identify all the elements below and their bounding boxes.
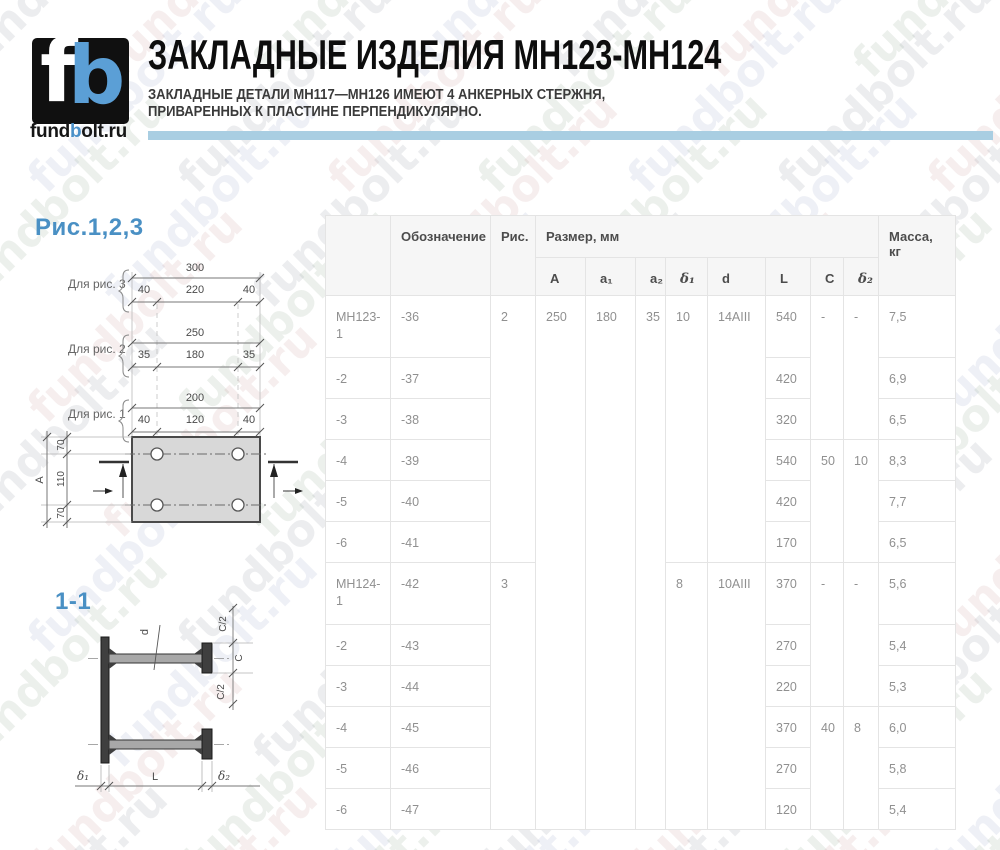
- cell-name: -2: [326, 625, 391, 666]
- delta2-label: δ₂: [218, 769, 230, 783]
- cell-mass: 5,3: [879, 666, 956, 707]
- cell-a1: 180: [586, 296, 636, 830]
- cell-L: 370: [766, 707, 811, 748]
- cell-C: 40: [811, 707, 844, 830]
- table-row: МН123-1 -36 2 250 180 35 10 14AIII 540 -…: [326, 296, 956, 358]
- cell-mass: 7,7: [879, 481, 956, 522]
- fundbolt-logo: f b: [32, 38, 129, 124]
- corner-cell: [326, 216, 391, 296]
- cell-delta2: 8: [844, 707, 879, 830]
- cell-name: МН123-1: [326, 296, 391, 358]
- cell-L: 270: [766, 625, 811, 666]
- c-half-top-label: C/2: [218, 616, 229, 632]
- section-mark-right: [268, 462, 303, 498]
- mass-line1: Масса,: [889, 229, 951, 244]
- cell-L: 420: [766, 358, 811, 399]
- cell-designation: -39: [391, 440, 491, 481]
- cell-L: 370: [766, 563, 811, 625]
- cell-fig: 3: [491, 563, 536, 830]
- col-header-a2: a₂: [636, 258, 666, 296]
- watermark-text: fundbolt.ru: [768, 0, 1000, 203]
- cell-delta2: 10: [844, 440, 879, 563]
- col-header-C: C: [811, 258, 844, 296]
- cell-name: -4: [326, 707, 391, 748]
- col-header-mass: Масса, кг: [879, 216, 956, 296]
- cell-L: 420: [766, 481, 811, 522]
- logo-site-prefix: fund: [30, 121, 70, 142]
- cell-C: -: [811, 296, 844, 440]
- cell-L: 540: [766, 296, 811, 358]
- fig3-dim-b: 220: [186, 284, 204, 296]
- cell-name: -2: [326, 358, 391, 399]
- subtitle-line1: ЗАКЛАДНЫЕ ДЕТАЛИ МН117—МН126 ИМЕЮТ 4 АНК…: [148, 87, 605, 104]
- page-subtitle: ЗАКЛАДНЫЕ ДЕТАЛИ МН117—МН126 ИМЕЮТ 4 АНК…: [148, 87, 605, 121]
- cell-name: -6: [326, 522, 391, 563]
- section-1-1-drawing: d C/2 C C/2 δ₁ L δ: [60, 600, 310, 805]
- plate-plan-drawing: Для рис. 3 300 40 220 40 Для рис. 2 250 …: [35, 248, 315, 540]
- col-header-delta1: δ₁: [666, 258, 708, 296]
- cell-A: 250: [536, 296, 586, 830]
- cell-mass: 7,5: [879, 296, 956, 358]
- plate-seg-bottom: 70: [56, 507, 67, 519]
- plate-overall-dim: A: [35, 476, 46, 484]
- cell-L: 540: [766, 440, 811, 481]
- c-half-bottom-label: C/2: [216, 684, 227, 700]
- figure-123-heading: Рис.1,2,3: [35, 214, 144, 242]
- fig2-dim-b: 180: [186, 349, 204, 361]
- cell-d: 10AIII: [708, 563, 766, 830]
- fig3-label: Для рис. 3: [68, 277, 126, 291]
- cell-name: МН124-1: [326, 563, 391, 625]
- cell-mass: 6,5: [879, 399, 956, 440]
- dim-group-fig2: Для рис. 2 250 35 180 35: [68, 327, 264, 377]
- cell-C: 50: [811, 440, 844, 563]
- watermark-text: fundbolt.ru: [993, 83, 1000, 318]
- cell-mass: 5,4: [879, 789, 956, 830]
- cell-name: -6: [326, 789, 391, 830]
- col-header-size: Размер, мм: [536, 216, 879, 258]
- watermark-text: fundbolt.ru: [693, 0, 928, 88]
- delta1-label: δ₁: [77, 769, 89, 783]
- cell-designation: -45: [391, 707, 491, 748]
- cell-L: 320: [766, 399, 811, 440]
- cell-delta1: 8: [666, 563, 708, 830]
- cell-mass: 5,8: [879, 748, 956, 789]
- cell-designation: -43: [391, 625, 491, 666]
- logo-site-b: b: [70, 121, 81, 142]
- cell-delta2: -: [844, 296, 879, 440]
- cell-a2: 35: [636, 296, 666, 830]
- cell-L: 220: [766, 666, 811, 707]
- logo-site-text: fundbolt.ru: [30, 121, 127, 143]
- anchor-head-bottom: [202, 729, 212, 759]
- cell-mass: 6,0: [879, 707, 956, 748]
- col-header-a1: a₁: [586, 258, 636, 296]
- cell-C: -: [811, 563, 844, 707]
- anchor-rod-bottom: [109, 740, 202, 749]
- cell-designation: -42: [391, 563, 491, 625]
- dim-group-fig3: Для рис. 3 300 40 220 40: [68, 262, 264, 312]
- subtitle-line2: ПРИВАРЕННЫХ К ПЛАСТИНЕ ПЕРПЕНДИКУЛЯРНО.: [148, 104, 605, 121]
- cell-L: 270: [766, 748, 811, 789]
- fig1-total: 200: [186, 392, 204, 404]
- watermark-text: fundbolt.ru: [843, 0, 1000, 88]
- cell-name: -5: [326, 748, 391, 789]
- left-extension-lines: [41, 437, 132, 522]
- cell-name: -4: [326, 440, 391, 481]
- anchor-head-top: [202, 643, 212, 673]
- cell-mass: 8,3: [879, 440, 956, 481]
- fig1-dim-c: 40: [243, 414, 255, 426]
- fig3-total: 300: [186, 262, 204, 274]
- section-plate: [101, 637, 109, 763]
- page-title: ЗАКЛАДНЫЕ ИЗДЕЛИЯ МН123-МН124: [148, 31, 721, 79]
- cell-delta1: 10: [666, 296, 708, 563]
- col-header-L: L: [766, 258, 811, 296]
- cell-mass: 5,4: [879, 625, 956, 666]
- page: fundbolt.rufundbolt.rufundbolt.rufundbol…: [0, 0, 1000, 850]
- weld-fillets: [109, 648, 202, 755]
- fig1-dim-b: 120: [186, 414, 204, 426]
- cell-mass: 6,5: [879, 522, 956, 563]
- watermark-text: fundbolt.ru: [993, 313, 1000, 548]
- cell-L: 120: [766, 789, 811, 830]
- cell-delta2: -: [844, 563, 879, 707]
- cell-designation: -36: [391, 296, 491, 358]
- cell-d: 14AIII: [708, 296, 766, 563]
- mass-line2: кг: [889, 244, 951, 259]
- cell-designation: -38: [391, 399, 491, 440]
- watermark-text: fundbolt.ru: [993, 773, 1000, 850]
- c-label: C: [234, 654, 245, 661]
- fig2-dim-a: 35: [138, 349, 150, 361]
- watermark-text: fundbolt.ru: [918, 0, 1000, 203]
- cell-designation: -44: [391, 666, 491, 707]
- cell-fig: 2: [491, 296, 536, 563]
- cell-designation: -46: [391, 748, 491, 789]
- cell-name: -5: [326, 481, 391, 522]
- spec-table: Обозначение Рис. Размер, мм Масса, кг A …: [325, 215, 956, 830]
- fig3-dim-c: 40: [243, 284, 255, 296]
- plate-seg-top: 70: [56, 439, 67, 451]
- fig2-total: 250: [186, 327, 204, 339]
- cell-name: -3: [326, 399, 391, 440]
- section-mark-left: [93, 462, 129, 498]
- rod-diameter-label: d: [139, 629, 151, 635]
- c-extension-lines: [212, 643, 253, 673]
- logo-letter-b: b: [68, 38, 125, 122]
- col-header-delta2: δ₂: [844, 258, 879, 296]
- watermark-text: fundbolt.ru: [993, 543, 1000, 778]
- cell-designation: -41: [391, 522, 491, 563]
- header-divider-bar: [148, 131, 993, 140]
- dim-group-fig1: Для рис. 1 200 40 120 40: [68, 392, 264, 442]
- cell-designation: -47: [391, 789, 491, 830]
- col-header-d: d: [708, 258, 766, 296]
- cell-L: 170: [766, 522, 811, 563]
- length-label: L: [152, 771, 158, 783]
- fig3-dim-a: 40: [138, 284, 150, 296]
- fig1-label: Для рис. 1: [68, 407, 126, 421]
- fig2-dim-c: 35: [243, 349, 255, 361]
- col-header-A: A: [536, 258, 586, 296]
- col-header-fig: Рис.: [491, 216, 536, 296]
- cell-mass: 5,6: [879, 563, 956, 625]
- cell-designation: -40: [391, 481, 491, 522]
- cell-name: -3: [326, 666, 391, 707]
- col-header-designation: Обозначение: [391, 216, 491, 296]
- logo-site-suffix: olt.ru: [81, 121, 127, 142]
- plate-seg-mid: 110: [56, 471, 67, 487]
- cell-mass: 6,9: [879, 358, 956, 399]
- fig1-dim-a: 40: [138, 414, 150, 426]
- fig2-label: Для рис. 2: [68, 342, 126, 356]
- cell-designation: -37: [391, 358, 491, 399]
- watermark-text: fundbolt.ru: [993, 0, 1000, 88]
